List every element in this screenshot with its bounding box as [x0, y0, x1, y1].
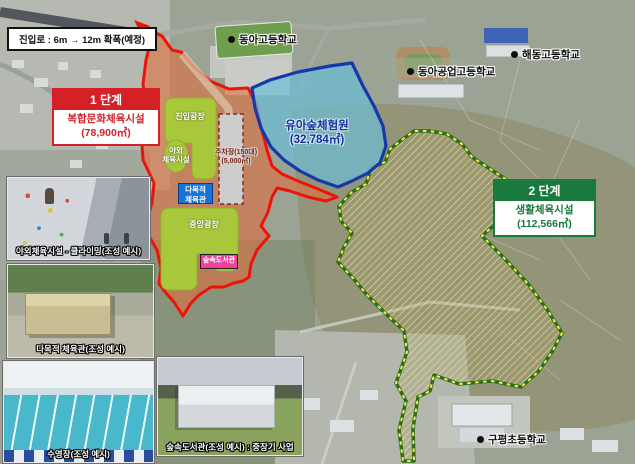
outdoor-sports-line1: 야외 — [156, 146, 196, 155]
outdoor-sports-line2: 체육시설 — [156, 155, 196, 164]
photo-art-gym-building — [25, 293, 111, 335]
school-label-gupyeong-es: 구평초등학교 — [477, 432, 546, 447]
photo-art-climber — [45, 188, 54, 204]
phase2-callout: 2 단계 생활체육시설 (112,566㎡) — [493, 179, 596, 237]
forest-zone-area: (32,784㎡) — [270, 133, 364, 147]
parking-line1: 주차장(150대) — [211, 149, 261, 158]
gym-line1: 다목적 — [179, 185, 212, 195]
phase1-title: 복합문화체육시설 — [56, 113, 156, 127]
school-marker-dot — [477, 436, 484, 443]
photo-caption: 수영장(조성 예시) — [4, 448, 153, 460]
forest-library-label: 숲속도서관 — [200, 254, 238, 269]
road-widening-note: 진입로 : 6m → 12m 확폭(예정) — [7, 27, 157, 51]
central-plaza-label: 중앙광장 — [184, 220, 224, 230]
parking-line2: (5,000㎡) — [211, 158, 261, 167]
school-label-haedong-hs: 해동고등학교 — [511, 47, 580, 62]
phase2-title: 생활체육시설 — [497, 204, 592, 218]
school-marker-dot — [511, 51, 518, 58]
outdoor-sports-label: 야외 체육시설 — [156, 146, 196, 165]
school-label-donga-technical-hs: 동아공업고등학교 — [407, 64, 495, 79]
photo-caption: 숲속도서관(조성 예시) : 중장기 사업 — [158, 441, 302, 453]
school-name: 구평초등학교 — [488, 432, 546, 447]
school-name: 동아공업고등학교 — [418, 64, 495, 79]
phase1-badge: 1 단계 — [54, 90, 158, 110]
school-marker-dot — [407, 68, 414, 75]
photo-art-library-building — [178, 385, 275, 428]
photo-art-person — [124, 233, 129, 244]
site-plan-map: 진입로 : 6m → 12m 확폭(예정) 동아고등학교 해동고등학교 동아공업… — [0, 0, 635, 464]
school-marker-dot — [228, 36, 235, 43]
phase1-callout: 1 단계 복합문화체육시설 (78,900㎡) — [52, 88, 160, 146]
school-name: 동아고등학교 — [239, 32, 297, 47]
photo-caption: 다목적 체육관(조성 예시) — [8, 343, 153, 355]
photo-art-person — [104, 233, 109, 244]
photo-library-rendering: 숲속도서관(조성 예시) : 중장기 사업 — [157, 357, 303, 456]
phase1-area: (78,900㎡) — [56, 127, 156, 141]
photo-caption: 야외체육시설 - 클라이밍(조성 예시) — [8, 245, 149, 257]
photo-swimming-pool: 수영장(조성 예시) — [3, 361, 154, 463]
school-label-donga-hs: 동아고등학교 — [228, 32, 297, 47]
photo-climbing-example: 야외체육시설 - 클라이밍(조성 예시) — [7, 177, 150, 260]
forest-zone-title: 유아숲체험원 — [270, 119, 364, 133]
entrance-plaza-label: 진입광장 — [170, 112, 210, 122]
photo-gym-rendering: 다목적 체육관(조성 예시) — [7, 264, 154, 358]
forest-zone-label: 유아숲체험원 (32,784㎡) — [270, 119, 364, 148]
multipurpose-gym-label: 다목적 체육관 — [178, 183, 213, 204]
phase2-area: (112,566㎡) — [497, 218, 592, 232]
phase2-badge: 2 단계 — [495, 181, 594, 201]
gym-line2: 체육관 — [179, 195, 212, 205]
parking-label: 주차장(150대) (5,000㎡) — [211, 149, 261, 167]
school-name: 해동고등학교 — [522, 47, 580, 62]
